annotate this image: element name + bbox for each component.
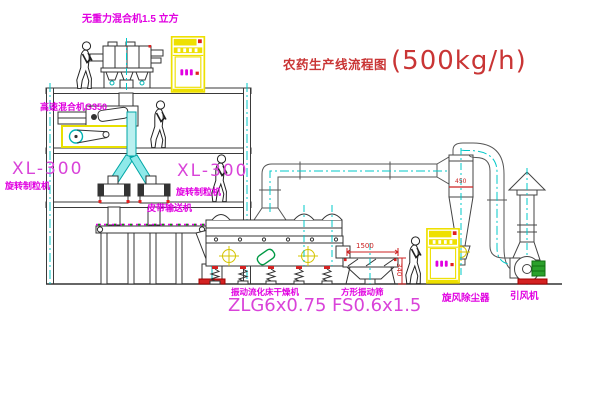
dryer-springs — [211, 269, 331, 281]
label-cyclone: 旋风除尘器 — [442, 294, 490, 304]
worker-figure — [151, 101, 166, 148]
flowchart-canvas: 农药生产线流程图 (500kg/h) 无重力混合机1.5 立方 高速混合机G35… — [0, 0, 600, 403]
title-capacity: (500kg/h) — [391, 46, 527, 76]
label-granulator-right-name: 旋转制粒机 — [176, 188, 221, 197]
label-granulator-right-model: XL-300 — [177, 163, 248, 180]
drawing-title: 农药生产线流程图 (500kg/h) — [283, 46, 527, 76]
control-cabinet — [172, 37, 205, 92]
worker-figure — [77, 42, 92, 89]
label-gravity-mixer: 无重力混合机1.5 立方 — [82, 15, 179, 25]
label-sieve-model: FS0.6x1.5 — [332, 297, 421, 315]
control-cabinet — [427, 229, 459, 283]
dimension-sieve-height: 340 — [395, 263, 402, 276]
induced-draft-fan — [510, 257, 547, 285]
label-fan: 引风机 — [510, 292, 539, 302]
label-granulator-left-model: XL-300 — [12, 161, 83, 178]
granulator-right — [138, 176, 170, 203]
label-granulator-left-name: 旋转制粒机 — [5, 182, 50, 191]
worker-figure — [406, 237, 421, 284]
dimension-cyclone: 450 — [455, 179, 466, 185]
granulator-left — [98, 176, 130, 203]
gravity-free-mixer — [90, 38, 163, 92]
label-dryer-model: ZLG6x0.75 — [228, 297, 327, 315]
label-high-speed-mixer: 高速混合机G350 — [40, 103, 107, 112]
title-chinese: 农药生产线流程图 — [283, 54, 387, 73]
dimension-sieve-length: 1500 — [356, 243, 374, 250]
label-belt-conveyor: 皮带输送机 — [147, 204, 192, 213]
dryer-exhaust-duct — [254, 157, 449, 220]
